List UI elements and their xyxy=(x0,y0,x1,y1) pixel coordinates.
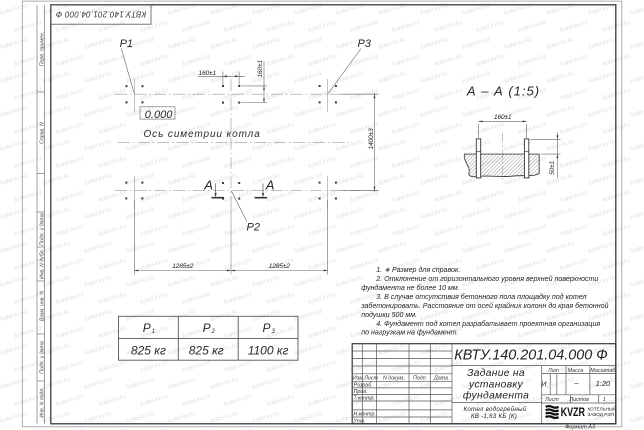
svg-text:Подп. и дата: Подп. и дата xyxy=(39,341,45,374)
svg-text:Р: Р xyxy=(203,321,211,335)
svg-text:установку: установку xyxy=(468,379,524,390)
svg-text:Р3: Р3 xyxy=(358,38,372,50)
svg-text:Инв. N подл.: Инв. N подл. xyxy=(39,387,45,417)
svg-text:1: 1 xyxy=(152,329,155,335)
svg-text:Пров.: Пров. xyxy=(354,389,368,395)
svg-text:825 кг: 825 кг xyxy=(189,343,224,357)
svg-text:160±1: 160±1 xyxy=(199,70,217,77)
svg-text:Утв.: Утв. xyxy=(354,418,366,424)
svg-text:по нагрузкам на фундамент.: по нагрузкам на фундамент. xyxy=(361,329,458,337)
svg-text:Разраб.: Разраб. xyxy=(354,383,373,389)
svg-text:Листов: Листов xyxy=(569,397,590,403)
svg-text:Котел водогрейный: Котел водогрейный xyxy=(463,406,526,413)
svg-text:Лист: Лист xyxy=(544,397,559,403)
svg-text:Н.контр.: Н.контр. xyxy=(354,411,376,417)
svg-text:Справ. N: Справ. N xyxy=(39,122,45,144)
svg-text:1285±2: 1285±2 xyxy=(269,263,291,270)
svg-text:–: – xyxy=(573,378,579,387)
svg-text:2. Отклонение от горизонтально: 2. Отклонение от горизонтального уровня … xyxy=(375,275,598,283)
svg-text:Лит: Лит xyxy=(547,368,560,374)
svg-text:Задание на: Задание на xyxy=(467,368,525,379)
svg-text:Р: Р xyxy=(262,321,270,335)
svg-text:Р2: Р2 xyxy=(247,222,260,234)
svg-text:КВ -1,63 КБ (К): КВ -1,63 КБ (К) xyxy=(471,413,517,420)
svg-text:KVZR: KVZR xyxy=(561,405,586,419)
svg-text:фундамента: фундамента xyxy=(463,390,529,402)
svg-text:КОТЕЛЬНЫЙ: КОТЕЛЬНЫЙ xyxy=(588,405,617,412)
svg-text:ЗАВОД РЭП: ЗАВОД РЭП xyxy=(588,412,614,417)
svg-text:Изм.Лист: Изм.Лист xyxy=(353,376,379,382)
svg-text:825 кг: 825 кг xyxy=(131,343,166,357)
svg-text:2: 2 xyxy=(211,329,216,335)
svg-text:0.000: 0.000 xyxy=(145,109,173,121)
svg-text:А: А xyxy=(265,177,275,192)
svg-text:Дата: Дата xyxy=(433,376,448,382)
svg-text:КВТУ.140.201.04.000 Ф: КВТУ.140.201.04.000 Ф xyxy=(454,347,607,363)
svg-text:подушки 500 мм.: подушки 500 мм. xyxy=(361,311,417,319)
svg-text:N докум.: N докум. xyxy=(383,376,404,382)
svg-text:А: А xyxy=(203,177,213,192)
svg-text:1100 кг: 1100 кг xyxy=(248,343,289,357)
svg-text:4. Фундамент под котел разраба: 4. Фундамент под котел разрабатывает про… xyxy=(376,320,600,328)
svg-text:Формат А3: Формат А3 xyxy=(565,424,596,430)
svg-text:1400±3: 1400±3 xyxy=(368,128,375,150)
svg-text:Р1: Р1 xyxy=(120,38,133,50)
svg-text:160±1: 160±1 xyxy=(257,60,264,78)
svg-text:А – А (1:5): А – А (1:5) xyxy=(466,83,540,98)
svg-text:Подп. и дата: Подп. и дата xyxy=(39,213,45,246)
svg-text:Масса: Масса xyxy=(568,368,584,374)
svg-text:Р: Р xyxy=(143,321,151,335)
svg-text:забетонировать. Расстояние от: забетонировать. Расстояние от осей крайн… xyxy=(360,302,608,310)
svg-text:50±1: 50±1 xyxy=(549,161,556,176)
svg-text:фундамента не более 10 мм.: фундамента не более 10 мм. xyxy=(361,284,460,292)
svg-text:1:20: 1:20 xyxy=(596,379,611,388)
svg-text:Масштаб: Масштаб xyxy=(590,368,616,374)
svg-text:Т.контр.: Т.контр. xyxy=(354,396,375,402)
svg-text:1: 1 xyxy=(603,397,606,403)
svg-text:И: И xyxy=(541,380,547,389)
svg-text:Взам. инв. N: Взам. инв. N xyxy=(39,291,45,321)
svg-text:Подп.: Подп. xyxy=(413,376,427,382)
svg-text:160±1: 160±1 xyxy=(494,114,512,121)
svg-text:1285±2: 1285±2 xyxy=(172,263,194,270)
svg-text:КВТУ.140.201.04.000 Ф: КВТУ.140.201.04.000 Ф xyxy=(55,10,146,19)
svg-text:Ось симетрии котла: Ось симетрии котла xyxy=(144,129,261,140)
svg-text:Инв. N дубл.: Инв. N дубл. xyxy=(39,249,45,279)
svg-text:1. ∗ Размер для справок.: 1. ∗ Размер для справок. xyxy=(376,266,460,274)
svg-text:Перв. примен.: Перв. примен. xyxy=(39,32,45,66)
svg-text:3. В случае отсутствия бетонно: 3. В случае отсутствия бетонного пола пл… xyxy=(376,293,586,301)
